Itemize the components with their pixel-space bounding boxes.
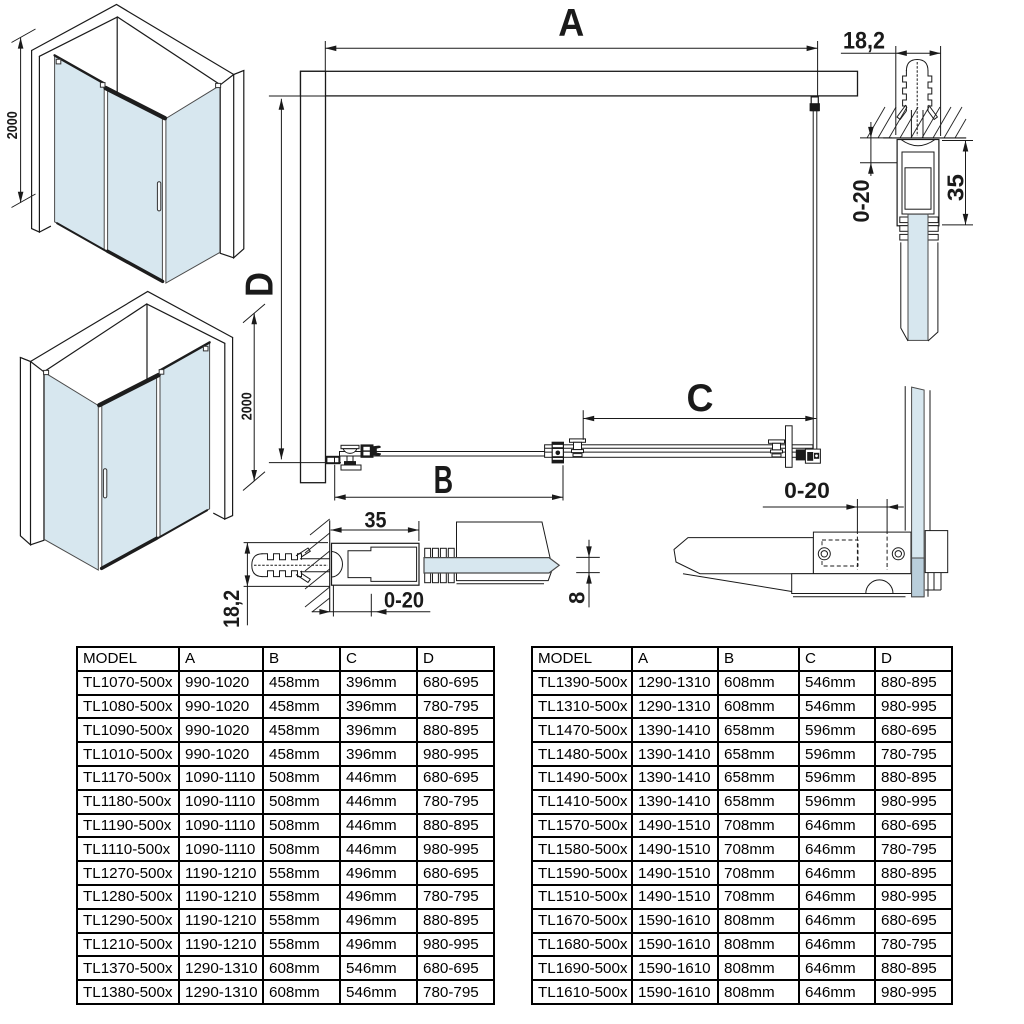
svg-text:2000: 2000 [5,111,21,139]
svg-text:A: A [558,2,584,45]
svg-text:2000: 2000 [240,392,256,420]
svg-text:18,2: 18,2 [843,28,885,55]
svg-text:C: C [687,377,714,420]
svg-text:D: D [239,272,282,297]
svg-text:0-20: 0-20 [784,478,830,503]
svg-text:B: B [434,459,454,502]
svg-text:35: 35 [365,508,387,533]
svg-text:35: 35 [943,174,969,201]
svg-text:0-20: 0-20 [384,588,424,613]
svg-text:18,2: 18,2 [219,590,244,628]
svg-text:0-20: 0-20 [848,180,874,223]
svg-text:8: 8 [565,592,590,604]
